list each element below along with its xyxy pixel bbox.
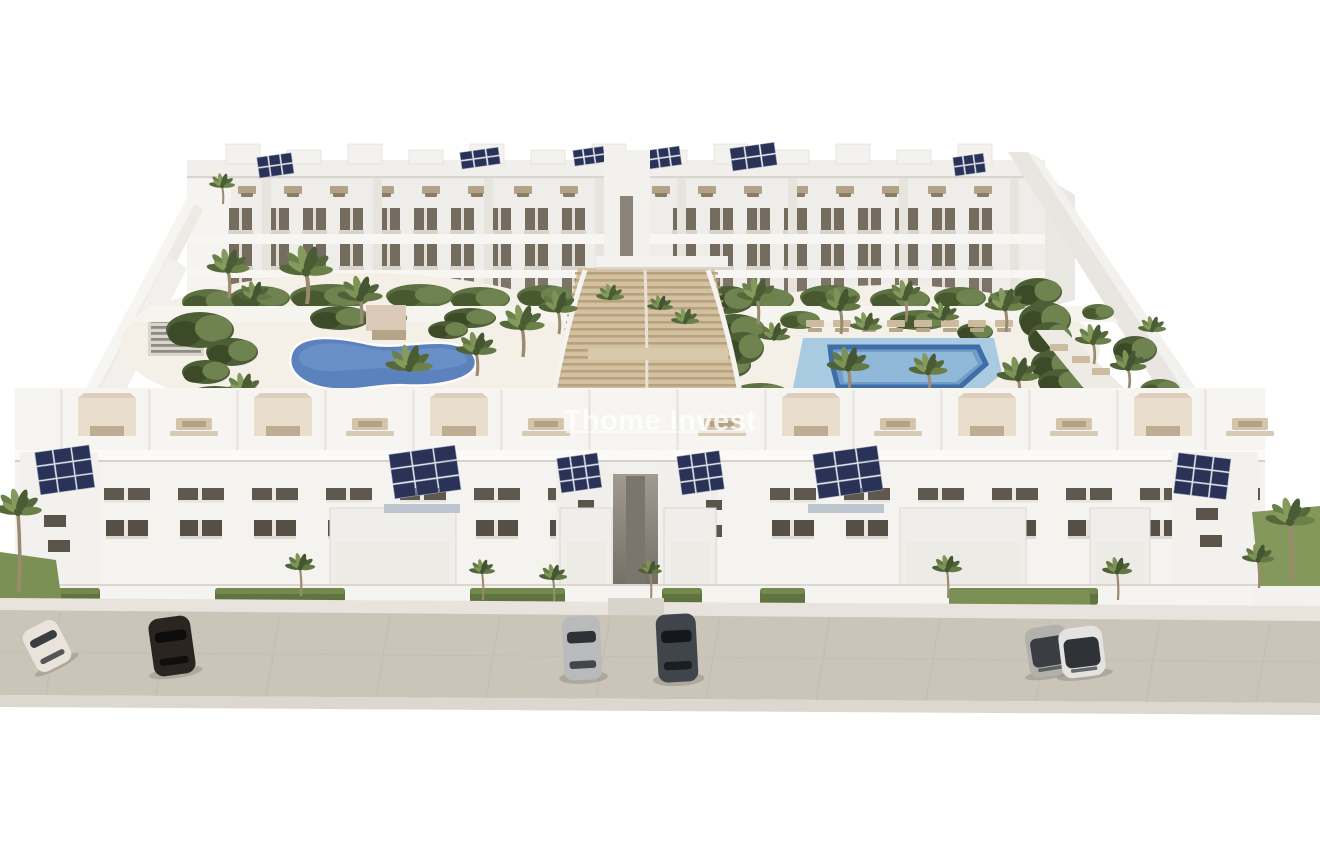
svg-text:Real Estate – Inmobiliaria – I: Real Estate – Inmobiliaria – Immobilien …: [564, 441, 756, 451]
